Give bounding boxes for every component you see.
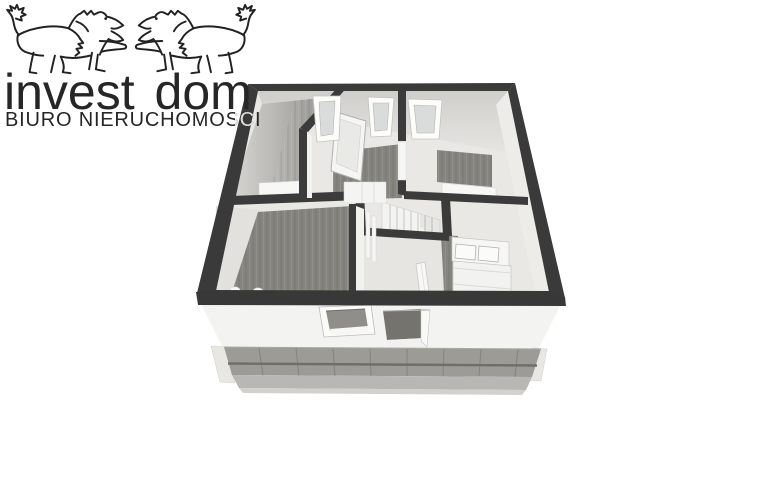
logo-subtitle-knockout: BIURO NIERUCHOMOSCI <box>235 108 253 138</box>
banister <box>366 212 370 258</box>
top-wall-windows <box>313 96 442 142</box>
facade-window-icon <box>319 305 375 337</box>
room-top-right <box>437 150 496 198</box>
room-bedroom <box>441 235 511 296</box>
room-bottom-left <box>214 206 352 294</box>
banister <box>372 216 376 262</box>
window-icon <box>408 99 442 139</box>
window-icon <box>313 96 341 142</box>
pillow <box>455 244 476 260</box>
logo-subtitle-knockout-text: BIURO NIERUCHOMOSCI <box>235 110 253 130</box>
door-frame <box>398 142 406 180</box>
page: invest dom BIURO NIERUCHOMOSCI BIURO NIE… <box>0 0 767 480</box>
double-bed <box>452 237 511 296</box>
logo-subtitle: BIURO NIERUCHOMOSCI <box>5 110 261 130</box>
terrace-base <box>232 375 532 395</box>
lower-floor-facade <box>199 300 562 395</box>
window-icon <box>368 97 394 137</box>
pillow <box>478 246 499 262</box>
facade-door-icon <box>383 309 430 349</box>
